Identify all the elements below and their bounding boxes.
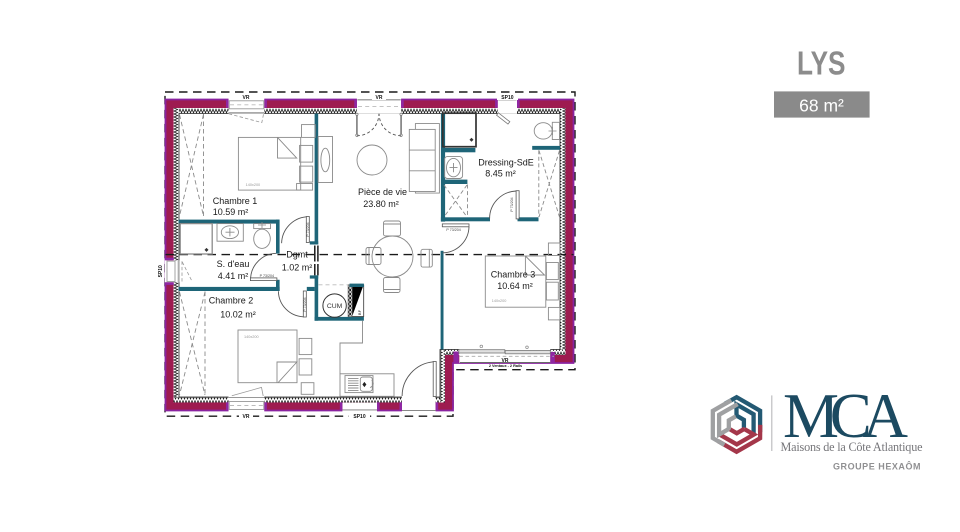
svg-text:140x200: 140x200 (244, 335, 259, 339)
svg-text:2 Ventaux - 2 Rails: 2 Ventaux - 2 Rails (489, 364, 522, 368)
svg-text:Pièce de vie: Pièce de vie (358, 187, 407, 197)
svg-text:P 73/204: P 73/204 (260, 274, 274, 278)
svg-text:P 73/204: P 73/204 (510, 197, 514, 211)
svg-text:SP10: SP10 (353, 414, 365, 420)
svg-text:4.41 m²: 4.41 m² (218, 271, 249, 281)
svg-text:Dressing-SdE: Dressing-SdE (478, 157, 534, 167)
svg-text:P 73/204: P 73/204 (306, 222, 310, 236)
svg-text:23.80 m²: 23.80 m² (363, 199, 399, 209)
svg-text:VR: VR (243, 95, 250, 101)
svg-text:140x200: 140x200 (492, 299, 507, 303)
svg-text:8.45 m²: 8.45 m² (485, 168, 516, 178)
svg-text:P 73/204: P 73/204 (446, 228, 460, 232)
svg-text:1.02 m²: 1.02 m² (282, 263, 313, 273)
svg-text:Chambre 2: Chambre 2 (209, 296, 254, 306)
svg-text:Chambre 1: Chambre 1 (213, 196, 258, 206)
svg-text:S. d'eau: S. d'eau (217, 259, 250, 269)
svg-text:Dgmt: Dgmt (286, 250, 308, 260)
svg-text:SP10: SP10 (158, 265, 164, 277)
svg-text:VR: VR (502, 358, 509, 364)
svg-text:VR: VR (243, 414, 250, 420)
svg-text:BF: BF (357, 309, 362, 315)
svg-text:10.64 m²: 10.64 m² (497, 281, 533, 291)
svg-text:P 73/204: P 73/204 (303, 297, 307, 311)
svg-text:10.59 m²: 10.59 m² (213, 207, 249, 217)
svg-text:VR: VR (376, 95, 383, 101)
svg-text:140x200: 140x200 (246, 183, 261, 187)
svg-text:GROUPE HEXAÔM: GROUPE HEXAÔM (833, 461, 922, 472)
svg-text:LYS: LYS (797, 45, 846, 82)
svg-text:CUM: CUM (327, 303, 343, 310)
svg-text:Maisons de la Côte Atlantique: Maisons de la Côte Atlantique (781, 440, 923, 454)
svg-text:68 m²: 68 m² (799, 96, 844, 116)
svg-text:Chambre 3: Chambre 3 (491, 269, 536, 279)
svg-text:10.02 m²: 10.02 m² (220, 310, 256, 320)
svg-text:SP10: SP10 (501, 95, 513, 101)
